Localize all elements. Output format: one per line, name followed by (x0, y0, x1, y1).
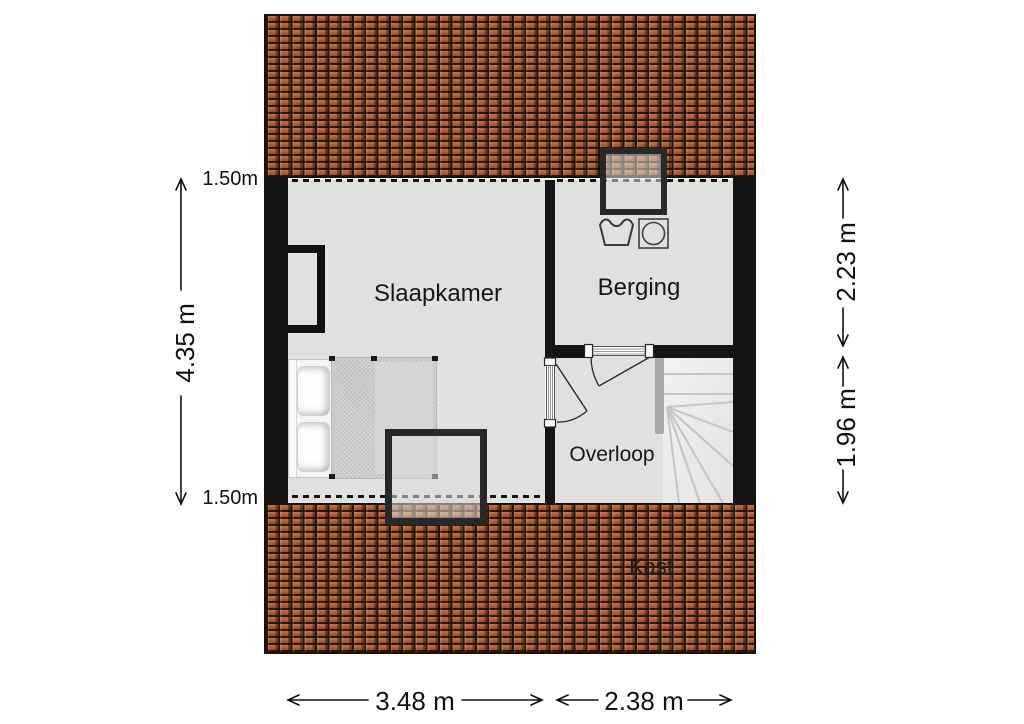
room-label-bedroom: Slaapkamer (338, 280, 538, 308)
wall-right (733, 178, 756, 503)
wall-storage-landing-right (654, 345, 733, 358)
roof-top (264, 14, 756, 178)
winder-stairs (663, 358, 733, 503)
wall-storage-landing-left (555, 345, 585, 358)
dim-knee-top: 1.50m (190, 168, 258, 191)
pillow (297, 422, 330, 472)
bed-marker (432, 356, 438, 361)
dim-bottom-left: 3.48 m (365, 686, 465, 717)
roof-window-icon (600, 148, 667, 215)
dim-right-upper: 2.23 m (831, 207, 857, 317)
washing-machine-icon (639, 219, 668, 248)
dim-bottom-right: 2.38 m (594, 686, 694, 717)
floor-plan-canvas: Slaapkamer Berging Overloop Kast (0, 0, 1024, 724)
bed-headboard (290, 360, 297, 477)
bed-marker (371, 356, 377, 361)
room-label-closet: Kast (601, 554, 701, 580)
dim-knee-bottom: 1.50m (190, 487, 258, 510)
laundry-icons (598, 214, 670, 252)
wall-left (264, 178, 288, 503)
pillow (297, 366, 330, 416)
room-label-storage: Berging (559, 274, 719, 302)
dim-right-lower: 1.96 m (831, 373, 857, 483)
roof-window-icon (385, 429, 487, 525)
hand-wash-tub-icon (600, 219, 633, 245)
knee-wall-line-top-left (292, 179, 543, 182)
dim-left-total: 4.35 m (170, 283, 196, 403)
room-label-landing: Overloop (532, 443, 692, 467)
stair-handrail (655, 357, 664, 434)
wall-bedroom-landing-upper (545, 180, 555, 359)
bed-marker (329, 474, 335, 479)
bed-marker (329, 356, 335, 361)
